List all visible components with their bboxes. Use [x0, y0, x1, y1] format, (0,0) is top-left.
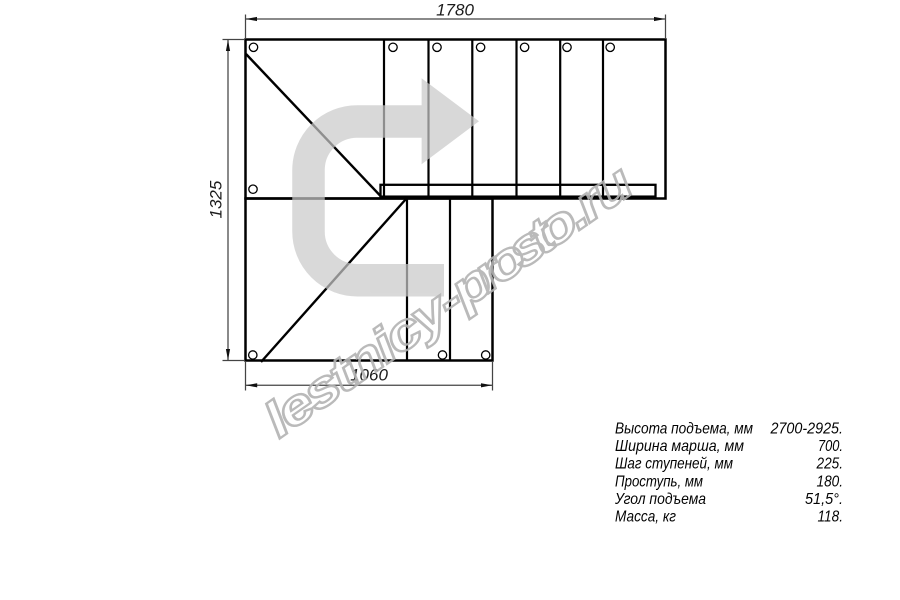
svg-text:Угол подъема: Угол подъема — [614, 491, 706, 508]
svg-text:51,5°.: 51,5°. — [805, 491, 843, 508]
svg-text:Масса, кг: Масса, кг — [615, 509, 676, 526]
svg-text:225.: 225. — [816, 456, 843, 473]
svg-text:118.: 118. — [818, 509, 844, 526]
svg-text:Высота подъема, мм: Высота подъема, мм — [615, 420, 753, 437]
svg-text:Проступь, мм: Проступь, мм — [615, 473, 703, 490]
svg-text:1325: 1325 — [207, 180, 226, 218]
svg-text:2700-2925.: 2700-2925. — [770, 420, 843, 437]
svg-text:Ширина марша, мм: Ширина марша, мм — [615, 438, 744, 455]
svg-text:700.: 700. — [818, 438, 843, 455]
svg-text:180.: 180. — [817, 473, 844, 490]
svg-text:1780: 1780 — [436, 1, 474, 20]
svg-text:Шаг ступеней, мм: Шаг ступеней, мм — [615, 456, 733, 473]
